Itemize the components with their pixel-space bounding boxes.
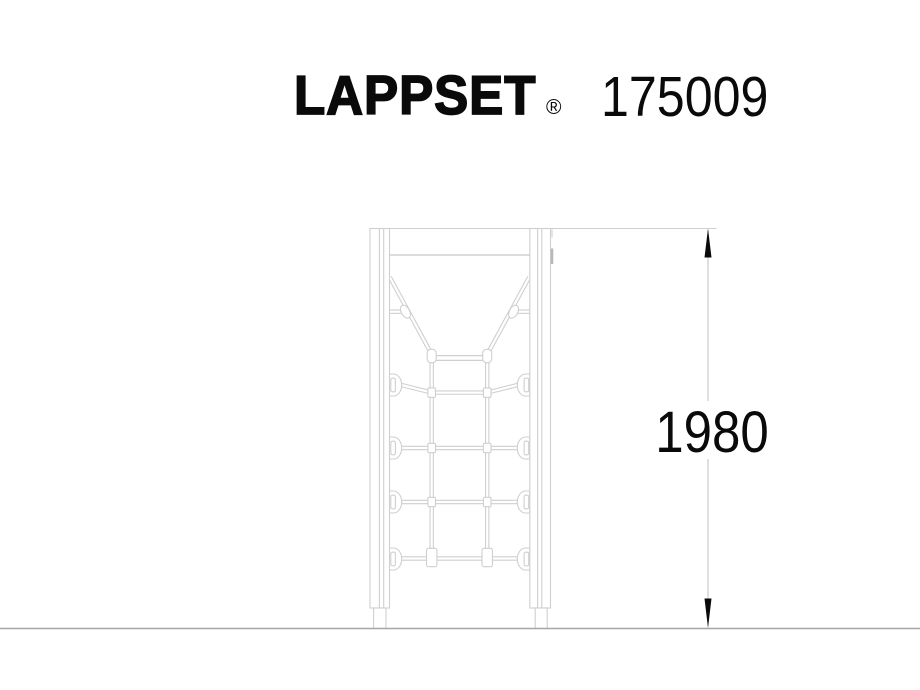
rung-rope-1 [400, 385, 520, 393]
technical-elevation-drawing [0, 0, 920, 690]
clamp-rope-right [507, 304, 530, 320]
rope-cross-connector [483, 497, 491, 506]
rope-end-bracket [517, 374, 529, 396]
right-post-foot [535, 608, 547, 629]
right-post [530, 229, 551, 629]
left-post [370, 229, 390, 629]
rope-end-bracket [517, 491, 529, 513]
rope-end-bracket [517, 437, 529, 459]
clamp-rope-left [390, 304, 413, 320]
rope-end-bracket [389, 374, 401, 396]
dimension-arrow-down-icon [705, 599, 712, 629]
rope-joint-capsule [427, 349, 436, 362]
dimension-arrow-up-icon [705, 229, 712, 258]
drawing-sheet: LAPPSET ® 175009 [0, 0, 920, 690]
rope-cross-connector [428, 497, 436, 506]
rope-cross-connector [428, 443, 436, 452]
rope-end-bracket [389, 548, 401, 570]
rope-end-bracket [389, 491, 401, 513]
rope-end-sleeve [482, 548, 492, 566]
rope-end-sleeve [427, 548, 437, 566]
rope-cross-connector [428, 388, 436, 397]
rope-cross-connector [483, 388, 491, 397]
rope-end-bracket [517, 548, 529, 570]
rope-end-bracket [389, 437, 401, 459]
rope-joint-capsule [483, 349, 492, 362]
left-post-foot [374, 608, 386, 629]
rope-cross-connector [483, 443, 491, 452]
dimension-height-label: 1980 [655, 404, 761, 462]
